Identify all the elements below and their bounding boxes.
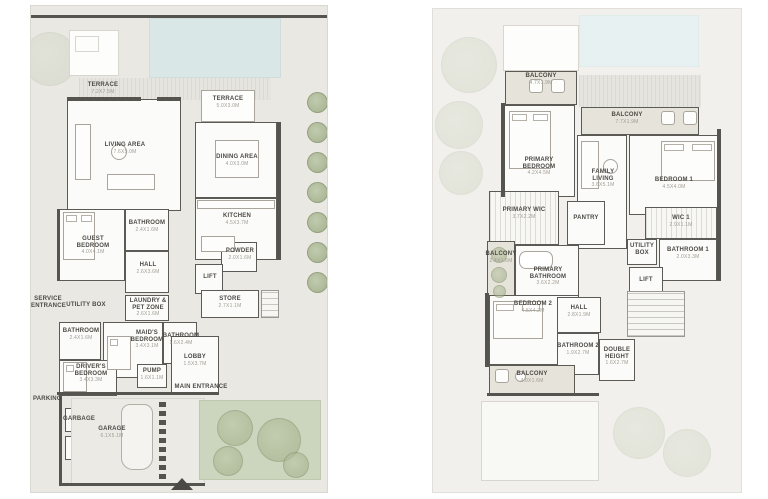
label-living-area: LIVING AREA7.6X5.0M <box>89 142 161 155</box>
wall-segment <box>277 122 281 260</box>
label-store: STORE2.7X1.1M <box>207 296 253 309</box>
label-parking: PARKING <box>31 396 73 403</box>
label-utility-box: UTILITY BOX <box>625 243 659 256</box>
label-main-entrance: MAIN ENTRANCE <box>161 384 241 391</box>
tree-icon <box>307 272 328 293</box>
tree-icon <box>441 37 497 93</box>
outdoor-sofa <box>75 36 99 52</box>
roof-below <box>481 401 599 481</box>
label-bathroom-guest: BATHROOM2.4X1.6M <box>127 220 167 233</box>
label-maids-bedroom: MAID'S BEDROOM3.4X3.1M <box>129 330 165 349</box>
tree-icon <box>491 267 507 283</box>
label-bathroom-1: BATHROOM 12.0X3.3M <box>659 247 717 260</box>
tree-icon <box>435 101 483 149</box>
wall-segment <box>717 129 721 281</box>
wall-segment <box>501 103 505 197</box>
label-dining-area: DINING AREA4.0X3.0M <box>207 154 267 167</box>
label-family-living: FAMILY LIVING3.6X5.1M <box>583 169 623 188</box>
tree-icon <box>307 182 328 203</box>
label-pantry: PANTRY <box>569 215 603 222</box>
tree-icon <box>307 92 328 113</box>
tree-icon <box>663 429 711 477</box>
label-bathroom-2: BATHROOM1.6X2.4M <box>162 333 200 346</box>
first-floor-plan: BALCONY4.7X1.9M BALCONY7.7X1.9M PRIMARY … <box>432 8 742 493</box>
tree-icon <box>307 122 328 143</box>
wall-segment <box>57 392 219 395</box>
label-pump: PUMP1.6X1.1M <box>135 368 169 381</box>
label-lift: LIFT <box>633 277 659 284</box>
tree-icon <box>213 446 243 476</box>
wall-segment <box>485 293 489 367</box>
label-guest-bedroom: GUEST BEDROOM4.0X4.1M <box>67 236 119 255</box>
tree-icon <box>439 151 483 195</box>
driveway-gate <box>159 402 166 482</box>
roof-below <box>503 25 579 71</box>
pool <box>579 15 699 67</box>
label-service-entrance: SERVICE ENTRANCE <box>31 296 65 309</box>
sofa <box>107 174 155 190</box>
bed <box>661 141 715 181</box>
tree-icon <box>283 452 309 478</box>
pool <box>149 18 281 78</box>
label-balcony-right: BALCONY7.7X1.9M <box>595 112 659 125</box>
tree-icon <box>307 152 328 173</box>
tree-icon <box>613 407 665 459</box>
label-powder: POWDER2.0X1.6M <box>221 248 259 261</box>
wall-segment <box>67 97 141 101</box>
label-bedroom-1: BEDROOM 14.5X4.0M <box>645 177 703 190</box>
wall-segment <box>57 209 60 281</box>
lounge-chair <box>661 111 675 125</box>
label-double-height: DOUBLE HEIGHT1.6X2.7M <box>597 347 637 366</box>
label-primary-bathroom: PRIMARY BATHROOM3.6X2.2M <box>525 267 571 286</box>
label-balcony-bottom: BALCONY4.0X1.6M <box>509 371 555 384</box>
label-hall: HALL2.6X3.6M <box>129 262 167 275</box>
label-bedroom-2: BEDROOM 24.5X4.2M <box>507 301 559 314</box>
room-bathroom-1 <box>659 239 717 281</box>
label-balcony-top: BALCONY4.7X1.9M <box>509 73 573 86</box>
label-bathroom-maid: BATHROOM2.4X1.6M <box>61 328 101 341</box>
label-wic-1: WIC 12.9X1.1M <box>653 215 709 228</box>
tree-icon <box>307 242 328 263</box>
label-utility-box: UTILITY BOX <box>63 302 109 309</box>
lounge-chair <box>683 111 697 125</box>
label-bathroom-2: BATHROOM 21.9X2.7M <box>555 343 601 356</box>
wall-segment <box>487 393 599 396</box>
label-drivers-bedroom: DRIVER'S BEDROOM3.4X3.3M <box>69 364 113 383</box>
label-lift: LIFT <box>197 274 223 281</box>
stairs <box>261 290 279 318</box>
room-pantry <box>567 201 605 245</box>
stairs <box>627 291 685 337</box>
tree-icon <box>307 212 328 233</box>
entrance-arrow-icon <box>171 478 193 490</box>
label-garbage: GARBAGE <box>61 416 97 423</box>
label-kitchen: KITCHEN4.5X3.7M <box>211 213 263 226</box>
label-terrace-main: TERRACE7.2X7.5M <box>71 82 135 95</box>
label-primary-wic: PRIMARY WIC3.7X2.2M <box>495 207 553 220</box>
label-garage: GARAGE6.1X5.1M <box>87 426 137 439</box>
ground-floor-plan: TERRACE7.2X7.5M TERRACE5.0X3.0M LIVING A… <box>30 5 328 493</box>
wall-segment <box>59 396 62 486</box>
wall-segment <box>157 97 181 101</box>
label-balcony-small: BALCONY2.4X1.6M <box>481 251 521 264</box>
label-primary-bedroom: PRIMARY BEDROOM4.2X4.5M <box>513 157 565 176</box>
kitchen-counter <box>197 200 275 209</box>
label-laundry-pet-zone: LAUNDRY & PET ZONE2.6X1.6M <box>125 298 171 317</box>
label-lobby: LOBBY1.5X3.7M <box>175 354 215 367</box>
floorplan-sheet: TERRACE7.2X7.5M TERRACE5.0X3.0M LIVING A… <box>0 0 768 499</box>
label-hall: HALL2.8X1.9M <box>557 305 601 318</box>
lounge-chair <box>495 369 509 383</box>
tree-icon <box>217 410 253 446</box>
label-terrace-dining: TERRACE5.0X3.0M <box>203 96 253 109</box>
roof-hatch <box>579 75 701 107</box>
tree-icon <box>493 285 506 298</box>
